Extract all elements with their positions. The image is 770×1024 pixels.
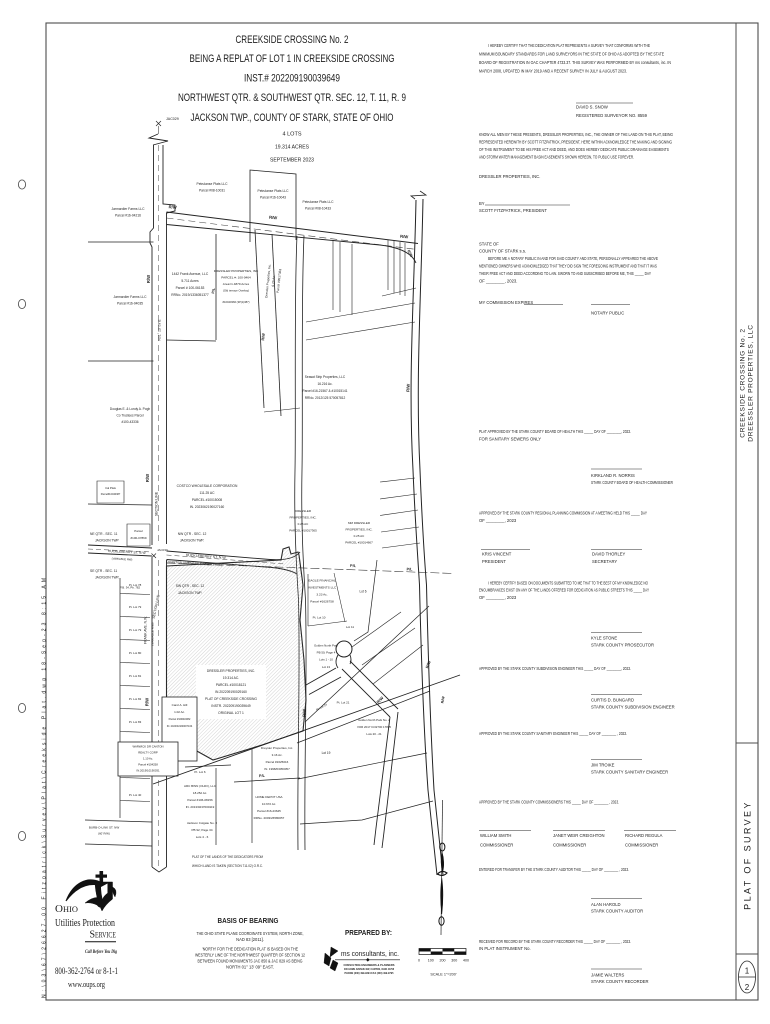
svg-text:Lots 1 - 10: Lots 1 - 10 <box>319 658 333 662</box>
svg-text:Pt. Lot 80: Pt. Lot 80 <box>129 651 142 655</box>
svg-text:(60' R/W): (60' R/W) <box>98 832 110 836</box>
svg-text:R/W: R/W <box>301 709 306 717</box>
svg-text:STARK COUNTY SUBDIVISION ENGIN: STARK COUNTY SUBDIVISION ENGINEER <box>591 705 675 710</box>
svg-text:Parcel #08-10433: Parcel #08-10433 <box>305 207 331 211</box>
svg-text:REPRESENTED HEREWITH BY SCOTT: REPRESENTED HEREWITH BY SCOTT FITZPATRIC… <box>479 140 672 145</box>
svg-text:4 LOTS: 4 LOTS <box>283 132 302 138</box>
svg-text:RRNo. 2003/26580057: RRNo. 2003/26580057 <box>254 816 285 820</box>
svg-text:R/W: R/W <box>405 384 411 393</box>
svg-text:Lot 6: Lot 6 <box>359 590 366 594</box>
svg-text:19.314 AC.: 19.314 AC. <box>223 676 239 680</box>
svg-text:1.02 Ac.: 1.02 Ac. <box>174 710 185 714</box>
svg-text:Parcel #16-23645: Parcel #16-23645 <box>257 809 281 813</box>
svg-text:P/L: P/L <box>211 287 216 294</box>
svg-text:JACKSON TWP.: JACKSON TWP. <box>180 539 205 543</box>
svg-text:COUNTY OF STARK s.s.: COUNTY OF STARK s.s. <box>479 249 526 254</box>
svg-text:RRNo. 2012/125 570057812: RRNo. 2012/125 570057812 <box>305 396 346 400</box>
svg-text:Jackson Colgate No. 3: Jackson Colgate No. 3 <box>187 821 218 825</box>
svg-text:Lots 20 - 21: Lots 20 - 21 <box>366 732 382 736</box>
svg-text:PARCEL #: 100-0464: PARCEL #: 100-0464 <box>221 276 251 280</box>
svg-text:ALAN HAROLD: ALAN HAROLD <box>591 902 621 907</box>
svg-text:IN. 2023062190027160: IN. 2023062190027160 <box>190 505 225 509</box>
svg-text:NAD 83 [2011].: NAD 83 [2011]. <box>236 937 264 942</box>
svg-text:ARC BINN (OHIO), LLC: ARC BINN (OHIO), LLC <box>184 784 217 788</box>
svg-text:IN. 2020/02190007164: IN. 2020/02190007164 <box>167 725 193 728</box>
svg-text:Parcel #106-08156: Parcel #106-08156 <box>187 798 213 802</box>
svg-text:RECEIVED FOR RECORD BY THE STA: RECEIVED FOR RECORD BY THE STARK COUNTY … <box>479 939 631 944</box>
svg-text:Pt. Lot 6: Pt. Lot 6 <box>194 770 206 774</box>
svg-text:JANET WEIR CREIGHTON: JANET WEIR CREIGHTON <box>553 833 605 838</box>
svg-text:1.10 Ac.: 1.10 Ac. <box>143 757 153 761</box>
svg-text:BY: BY <box>479 201 485 206</box>
svg-text:PROPERTIES, INC.: PROPERTIES, INC. <box>346 528 373 532</box>
svg-text:R/W: R/W <box>400 234 409 240</box>
svg-text:BOARD OF REGISTRATION IN OAC C: BOARD OF REGISTRATION IN OAC CHAPTER 473… <box>479 60 671 65</box>
svg-text:PARCEL #10014667: PARCEL #10014667 <box>345 541 373 545</box>
svg-text:NW QTR - SEC. 12: NW QTR - SEC. 12 <box>178 532 207 536</box>
svg-text:200: 200 <box>440 959 446 963</box>
svg-text:CREEKSIDE CROSSING No. 2: CREEKSIDE CROSSING No. 2 <box>236 34 349 46</box>
svg-text:WESTERLY LINE OF THE NORTHWEST: WESTERLY LINE OF THE NORTHWEST QUARTER O… <box>195 953 306 958</box>
svg-text:PB 50; Page 4: PB 50; Page 4 <box>317 651 336 655</box>
svg-text:JACKSON TWP., COUNTY OF STARK,: JACKSON TWP., COUNTY OF STARK, STATE OF … <box>191 112 394 124</box>
svg-text:NORTH 01° 13' 09" EAST.: NORTH 01° 13' 09" EAST. <box>226 965 274 970</box>
svg-text:INST.# 202209190039649: INST.# 202209190039649 <box>244 73 340 85</box>
svg-text:ENCUMBRANCES EXIST ON ANY OF T: ENCUMBRANCES EXIST ON ANY OF THE LANDS O… <box>479 588 649 593</box>
svg-text:'NORTH' FOR THE DEDICATION PLA: 'NORTH' FOR THE DEDICATION PLAT IS BASED… <box>202 947 298 952</box>
svg-text:IN PLAT INSTRUMENT No.: IN PLAT INSTRUMENT No. <box>479 946 531 951</box>
svg-text:BEING A REPLAT OF LOT 1 IN CRE: BEING A REPLAT OF LOT 1 IN CREEKSIDE CRO… <box>190 53 395 65</box>
svg-text:Jarmardier Farms LLC: Jarmardier Farms LLC <box>112 207 146 211</box>
svg-text:JAMIE WALTERS: JAMIE WALTERS <box>591 973 624 978</box>
svg-text:JACKSON TWP.: JACKSON TWP. <box>178 591 203 595</box>
svg-text:16.216 Ac.: 16.216 Ac. <box>317 382 332 386</box>
svg-text:HUCKLEBERRY ST. N.W.: HUCKLEBERRY ST. N.W. <box>186 553 227 560</box>
svg-text:WARWICK DR CANTON: WARWICK DR CANTON <box>132 745 163 749</box>
svg-text:Golden North Park: Golden North Park <box>314 644 338 648</box>
svg-text:(VARIABLE RW): (VARIABLE RW) <box>112 556 133 561</box>
svg-text:SE QTR - SEC. 11: SE QTR - SEC. 11 <box>90 569 117 573</box>
svg-text:STARK COUNTY BOARD OF HEALTH C: STARK COUNTY BOARD OF HEALTH COMMISSIONE… <box>591 480 673 485</box>
svg-text:Parcel #10040382: Parcel #10040382 <box>169 717 191 721</box>
svg-text:SECRETARY: SECRETARY <box>592 559 617 564</box>
svg-text:STATE OF: STATE OF <box>479 242 499 247</box>
svg-text:19.314 ACRES: 19.314 ACRES <box>275 145 309 151</box>
svg-text:FRANK AVE. N.W.: FRANK AVE. N.W. <box>144 616 148 644</box>
svg-text:PLAT OF CREEKSIDE CROSSING: PLAT OF CREEKSIDE CROSSING <box>205 697 257 701</box>
svg-text:Co Trustees Parcel: Co Trustees Parcel <box>116 414 143 418</box>
svg-text:SECTION LINE: SECTION LINE <box>155 491 159 516</box>
svg-text:N:\03\67\26627-00 Fitzpatrick: N:\03\67\26627-00 Fitzpatrick\Survey\Pla… <box>42 578 48 998</box>
svg-text:STARK COUNTY RECORDER: STARK COUNTY RECORDER <box>591 979 649 984</box>
svg-text:1442 Frank Avenue, LLC: 1442 Frank Avenue, LLC <box>172 272 209 276</box>
svg-text:FOR SANITARY SEWERS ONLY: FOR SANITARY SEWERS ONLY <box>479 437 541 442</box>
svg-text:Area=1.4879 Acres: Area=1.4879 Acres <box>223 282 250 286</box>
svg-text:PHONE (330) 499-9394 FAX (33: PHONE (330) 499-9394 FAX (330) 499-9795 <box>345 971 395 975</box>
svg-text:Pt. Lot 21: Pt. Lot 21 <box>337 701 350 705</box>
svg-text:SECTION LINE: SECTION LINE <box>152 594 161 619</box>
svg-text:APPROVED BY THE STARK COUNTY S: APPROVED BY THE STARK COUNTY SUBDIVISION… <box>479 666 631 671</box>
svg-text:Parcel #1626758: Parcel #1626758 <box>310 600 334 604</box>
svg-text:R/W: R/W <box>440 695 445 703</box>
svg-text:Pt. Lot 24: Pt. Lot 24 <box>315 702 328 711</box>
svg-text:APPROVED BY THE STARK COUNTY S: APPROVED BY THE STARK COUNTY SANITARY EN… <box>479 731 627 736</box>
svg-text:AND STORM WATER MANAGEMENT BAS: AND STORM WATER MANAGEMENT BASIN EASEMEN… <box>479 155 634 160</box>
svg-text:Dreysler Properties, Inc.: Dreysler Properties, Inc. <box>261 746 293 750</box>
svg-text:ORIGINAL LOT 1: ORIGINAL LOT 1 <box>218 711 244 715</box>
svg-text:Lot 13: Lot 13 <box>322 665 330 669</box>
svg-text:Lot 19: Lot 19 <box>322 751 331 755</box>
svg-text:ENTERED FOR TRANSFER BY THE ST: ENTERED FOR TRANSFER BY THE STARK COUNTY… <box>479 867 629 872</box>
svg-text:MARCH 2008, UPDATED IN MAY 201: MARCH 2008, UPDATED IN MAY 2019 AND A RE… <box>479 69 627 74</box>
svg-text:OF THIS INSTRUMENT TO BE HIS F: OF THIS INSTRUMENT TO BE HIS FREE ACT AN… <box>479 147 669 152</box>
svg-text:R/W: R/W <box>269 215 278 221</box>
svg-text:STARK COUNTY SANITARY ENGINEER: STARK COUNTY SANITARY ENGINEER <box>591 770 668 775</box>
svg-text:100: 100 <box>428 959 434 963</box>
svg-text:CONSULTING ENGINEERS & PLANNER: CONSULTING ENGINEERS & PLANNERS <box>344 963 395 967</box>
svg-text:SEPTEMBER 2023: SEPTEMBER 2023 <box>270 158 314 164</box>
svg-text:JAC030: JAC030 <box>157 548 168 552</box>
svg-text:DREESSLER PROPERTIES, LLC: DREESSLER PROPERTIES, LLC <box>748 324 755 441</box>
svg-text:3.16 Ac.: 3.16 Ac. <box>272 753 283 757</box>
svg-text:Carol A. Hill: Carol A. Hill <box>172 703 188 707</box>
svg-text:I HEREBY CERTIFY THAT THE DEDI: I HEREBY CERTIFY THAT THE DEDICATION PLA… <box>488 43 650 48</box>
svg-text:THEIR FREE ACT AND DEED ACCORD: THEIR FREE ACT AND DEED ACCORDING TO LAW… <box>479 271 651 276</box>
svg-text:P/L: P/L <box>259 774 266 778</box>
svg-text:R/W: R/W <box>145 698 150 706</box>
svg-text:400: 400 <box>463 959 469 963</box>
svg-text:Parcel #9917363: Parcel #9917363 <box>276 268 283 293</box>
svg-text:6.29 Ac.: 6.29 Ac. <box>271 275 276 287</box>
svg-text:#100-43336: #100-43336 <box>121 420 138 424</box>
svg-text:Parcel#10040387: Parcel#10040387 <box>101 493 121 496</box>
svg-text:P/L: P/L <box>406 567 413 571</box>
svg-text:Parcel # 100-06153: Parcel # 100-06153 <box>176 286 205 290</box>
svg-text:Petrulanse Plats LLC: Petrulanse Plats LLC <box>197 182 229 186</box>
svg-text:2: 2 <box>745 983 750 992</box>
svg-text:OF ________, 2023: OF ________, 2023 <box>479 518 517 523</box>
svg-text:MM DRESSLER: MM DRESSLER <box>348 521 371 525</box>
svg-text:INVESTMENTS LLC: INVESTMENTS LLC <box>308 586 337 590</box>
svg-text:O: O <box>55 903 63 915</box>
svg-text:Pt. Lot 81: Pt. Lot 81 <box>129 674 142 678</box>
svg-text:Pt. Lot 40: Pt. Lot 40 <box>129 793 142 797</box>
svg-text:KYLE STONE: KYLE STONE <box>591 636 617 641</box>
svg-text:N01° 13' 09"E: N01° 13' 09"E <box>158 319 162 341</box>
svg-text:R/W: R/W <box>145 474 150 482</box>
svg-text:REGISTERED SURVEYOR NO. 8559: REGISTERED SURVEYOR NO. 8559 <box>576 113 648 118</box>
svg-text:Petrulanse Plats LLC: Petrulanse Plats LLC <box>303 200 335 204</box>
svg-text:SCALE 1"=200': SCALE 1"=200' <box>430 973 457 977</box>
svg-text:BEFORE ME A NOTARY PUBLIC IN A: BEFORE ME A NOTARY PUBLIC IN AND FOR SAI… <box>488 256 658 261</box>
svg-text:VOR 2017 IC32700 17825: VOR 2017 IC32700 17825 <box>357 725 391 729</box>
svg-text:JACKSON TWP: JACKSON TWP <box>95 539 120 543</box>
svg-text:5.711 Acres: 5.711 Acres <box>181 279 199 283</box>
svg-text:JAC029: JAC029 <box>166 117 179 121</box>
svg-text:NORTHWEST QTR. & SOUTHWEST QTR: NORTHWEST QTR. & SOUTHWEST QTR. SEC. 12,… <box>178 92 406 104</box>
svg-text:COSTCO WHOLESALE CORPORATION: COSTCO WHOLESALE CORPORATION <box>177 484 238 488</box>
svg-text:RICHARD REGULA: RICHARD REGULA <box>625 833 663 838</box>
svg-text:Pt. Lot 83: Pt. Lot 83 <box>129 720 142 724</box>
svg-text:(Old terrace Overlay): (Old terrace Overlay) <box>223 289 249 293</box>
svg-text:HIO: HIO <box>63 905 78 914</box>
svg-text:DRESSLER PROPERTIES, INC.: DRESSLER PROPERTIES, INC. <box>207 669 255 673</box>
svg-text:DRESSLER PROPERTIES, INC.: DRESSLER PROPERTIES, INC. <box>479 174 540 179</box>
svg-text:HOME DEPOT USA: HOME DEPOT USA <box>255 795 282 799</box>
svg-text:MENTIONED OWNERS WHO ACKNOWLED: MENTIONED OWNERS WHO ACKNOWLEDGED THAT T… <box>479 264 657 269</box>
svg-text:COMMISSIONER: COMMISSIONER <box>480 843 513 848</box>
svg-text:Parcel #16-04216: Parcel #16-04216 <box>115 214 141 218</box>
svg-text:Utilities Protection: Utilities Protection <box>55 918 115 929</box>
svg-text:Pt. Lot 79: Pt. Lot 79 <box>129 628 142 632</box>
svg-text:#100-07869: #100-07869 <box>130 536 146 540</box>
svg-text:REALTY CORP: REALTY CORP <box>138 751 158 755</box>
svg-text:R/W: R/W <box>424 660 432 669</box>
svg-text:Parcel #1625016: Parcel #1625016 <box>266 760 289 764</box>
svg-text:18.252 Ac.: 18.252 Ac. <box>193 791 207 795</box>
svg-text:PARCEL #10017365: PARCEL #10017365 <box>289 529 317 533</box>
svg-text:COMMISSIONER: COMMISSIONER <box>625 843 658 848</box>
svg-text:OF ________, 2023.: OF ________, 2023. <box>479 279 517 284</box>
svg-text:1: 1 <box>745 967 750 976</box>
svg-text:BURB-O-LINK ST. NW: BURB-O-LINK ST. NW <box>89 826 120 830</box>
svg-text:#10040366 (3P(1)387): #10040366 (3P(1)387) <box>222 300 249 304</box>
svg-text:Lot 11: Lot 11 <box>346 625 354 629</box>
svg-text:PREPARED BY:: PREPARED BY: <box>345 928 392 937</box>
svg-text:DAVID S. SNOW: DAVID S. SNOW <box>576 105 608 110</box>
svg-text:(VARIABLE R/W): (VARIABLE R/W) <box>151 622 155 645</box>
svg-text:Pt. Lot 79: Pt. Lot 79 <box>129 605 142 609</box>
svg-text:IN.2019/10190031: IN.2019/10190031 <box>136 769 159 773</box>
svg-text:0.25 AC: 0.25 AC <box>354 534 366 538</box>
svg-text:111.25 AC: 111.25 AC <box>200 491 216 495</box>
svg-text:Parcel: Parcel <box>134 529 143 533</box>
svg-text:P/L: P/L <box>350 564 357 568</box>
svg-text:BASIS OF BEARING: BASIS OF BEARING <box>218 916 279 925</box>
svg-text:R/W: R/W <box>261 333 266 341</box>
svg-text:10.672 Ac.: 10.672 Ac. <box>262 802 276 806</box>
svg-text:300 HOME AVENUE NW, CANTON, OH: 300 HOME AVENUE NW, CANTON, OHIO 44708 <box>344 967 394 971</box>
svg-text:PLAT APPROVED BY THE STARK COU: PLAT APPROVED BY THE STARK COUNTY BOARD … <box>479 429 631 434</box>
svg-text:INSTR. 202209190039649: INSTR. 202209190039649 <box>211 704 250 708</box>
svg-text:800-362-2764 or 8-1-1: 800-362-2764 or 8-1-1 <box>55 966 118 976</box>
svg-text:www.oups.org: www.oups.org <box>68 980 105 989</box>
svg-text:R/W: R/W <box>146 275 151 283</box>
svg-text:Pt. Lot 78: Pt. Lot 78 <box>129 583 142 587</box>
svg-text:ERVICE: ERVICE <box>95 931 116 940</box>
svg-text:PLAT OF THE LANDS OF THE DEDIC: PLAT OF THE LANDS OF THE DEDICATORS FROM <box>192 855 263 859</box>
svg-text:STARK COUNTY PROSECUTOR: STARK COUNTY PROSECUTOR <box>591 643 654 648</box>
svg-text:R/W: R/W <box>375 695 384 704</box>
svg-text:PB 92; Page 34: PB 92; Page 34 <box>191 828 212 832</box>
svg-text:Pt. Lot 82: Pt. Lot 82 <box>129 697 142 701</box>
svg-text:300: 300 <box>451 959 457 963</box>
svg-text:PARCEL #10015008: PARCEL #10015008 <box>192 498 222 502</box>
svg-text:Parcel #104258: Parcel #104258 <box>138 763 158 767</box>
svg-text:Cal Plats: Cal Plats <box>105 486 116 490</box>
svg-text:Call Before You Dig: Call Before You Dig <box>85 949 117 955</box>
svg-text:Parcel #08-10031: Parcel #08-10031 <box>199 189 225 193</box>
svg-text:PROPERTIES, INC.: PROPERTIES, INC. <box>290 516 317 520</box>
svg-text:Jarmardier Farms LLC: Jarmardier Farms LLC <box>114 295 148 299</box>
svg-text:NE QTR - SEC. 11: NE QTR - SEC. 11 <box>90 532 118 536</box>
svg-text:Golden North Park No. 2: Golden North Park No. 2 <box>358 718 390 722</box>
svg-text:ms consultants, inc.: ms consultants, inc. <box>341 949 399 958</box>
svg-text:SCOTT FITZPATRICK, PRESIDENT: SCOTT FITZPATRICK, PRESIDENT <box>479 208 547 213</box>
svg-text:IN.202209190029160: IN.202209190029160 <box>215 690 247 694</box>
svg-text:Seasat Strip Properties, LLC: Seasat Strip Properties, LLC <box>305 375 346 379</box>
svg-text:THE OHIO STATE PLANE COORDINAT: THE OHIO STATE PLANE COORDINATE SYSTEM, … <box>197 931 304 936</box>
svg-text:WILLIAM SMITH: WILLIAM SMITH <box>480 833 511 838</box>
svg-text:KIRKLAND R. NORRIS: KIRKLAND R. NORRIS <box>591 473 635 478</box>
svg-text:QUARTER LINE: QUARTER LINE <box>166 560 190 565</box>
svg-text:PRESIDENT: PRESIDENT <box>482 559 506 564</box>
svg-text:Pt. Lot 10: Pt. Lot 10 <box>313 616 326 620</box>
svg-text:Lots 4 - 6: Lots 4 - 6 <box>196 835 209 839</box>
svg-text:IN. 2013/0237000119: IN. 2013/0237000119 <box>186 805 215 809</box>
svg-text:Parcel #16-21567 & #10015141: Parcel #16-21567 & #10015141 <box>302 389 347 393</box>
svg-text:PLAT OF SURVEY: PLAT OF SURVEY <box>743 800 753 910</box>
svg-text:JIM TROIKE: JIM TROIKE <box>591 763 615 768</box>
svg-text:IN. 1998/03050057: IN. 1998/03050057 <box>264 767 290 771</box>
svg-text:BETWEEN FOUND MONUMENTS JAC 85: BETWEEN FOUND MONUMENTS JAC 850 & JAC 82… <box>198 959 303 964</box>
svg-text:0.25 AC: 0.25 AC <box>298 522 310 526</box>
svg-text:NOTARY PUBLIC: NOTARY PUBLIC <box>591 311 624 316</box>
svg-text:WHICH LAND IS TAKEN (SECTION 7: WHICH LAND IS TAKEN (SECTION 711.02) O.R… <box>192 864 263 868</box>
svg-text:MINIMUM BOUNDARY STANDARDS FOR: MINIMUM BOUNDARY STANDARDS FOR LAND SURV… <box>479 52 664 57</box>
svg-text:0: 0 <box>418 959 420 963</box>
svg-text:Petrulanse Plats LLC: Petrulanse Plats LLC <box>258 189 290 193</box>
svg-text:CURTIS D. BUNGARD: CURTIS D. BUNGARD <box>591 698 634 703</box>
svg-text:APPROVED BY THE STARK COUNTY R: APPROVED BY THE STARK COUNTY REGIONAL PL… <box>479 511 647 516</box>
svg-text:DRESSLER: DRESSLER <box>295 509 312 513</box>
svg-text:KNOW ALL MEN BY THESE PRESENTS: KNOW ALL MEN BY THESE PRESENTS, DRESSLER… <box>479 132 673 137</box>
svg-text:OF ________, 2023: OF ________, 2023 <box>479 595 517 600</box>
svg-text:Douglas E. & Lundy A. Pogh: Douglas E. & Lundy A. Pogh <box>110 407 150 411</box>
svg-text:Parcel #16-10043: Parcel #16-10043 <box>260 196 286 200</box>
svg-text:3.23 Ac.: 3.23 Ac. <box>316 593 327 597</box>
svg-text:STARK COUNTY AUDITOR: STARK COUNTY AUDITOR <box>591 909 643 914</box>
svg-text:PARCEL #10018121: PARCEL #10018121 <box>216 683 246 687</box>
svg-text:RRNo. 2019/1336051377: RRNo. 2019/1336051377 <box>171 293 209 297</box>
svg-text:DAVID THORLEY: DAVID THORLEY <box>592 552 626 557</box>
svg-text:EAGLE FINANCIAL: EAGLE FINANCIAL <box>308 579 336 583</box>
svg-text:DRESSLER PROPERTIES, INC: DRESSLER PROPERTIES, INC <box>214 269 259 273</box>
svg-text:R/W: R/W <box>168 204 177 210</box>
svg-text:KRIS VINCENT: KRIS VINCENT <box>482 552 512 557</box>
svg-text:JACKSON TWP.: JACKSON TWP. <box>95 576 120 580</box>
svg-text:Parcel #16-04035: Parcel #16-04035 <box>117 302 143 306</box>
svg-text:I HEREBY CERTIFY BASED ON DOCU: I HEREBY CERTIFY BASED ON DOCUMENTS SUBM… <box>488 581 649 586</box>
svg-text:CREEKSIDE CROSSING No. 2: CREEKSIDE CROSSING No. 2 <box>740 328 747 438</box>
svg-text:APPROVED BY THE STARK COUNTY C: APPROVED BY THE STARK COUNTY COMMISSIONE… <box>479 800 619 805</box>
svg-text:SW QTR - SEC. 12: SW QTR - SEC. 12 <box>176 584 205 588</box>
svg-text:COMMISSIONER: COMMISSIONER <box>553 843 586 848</box>
